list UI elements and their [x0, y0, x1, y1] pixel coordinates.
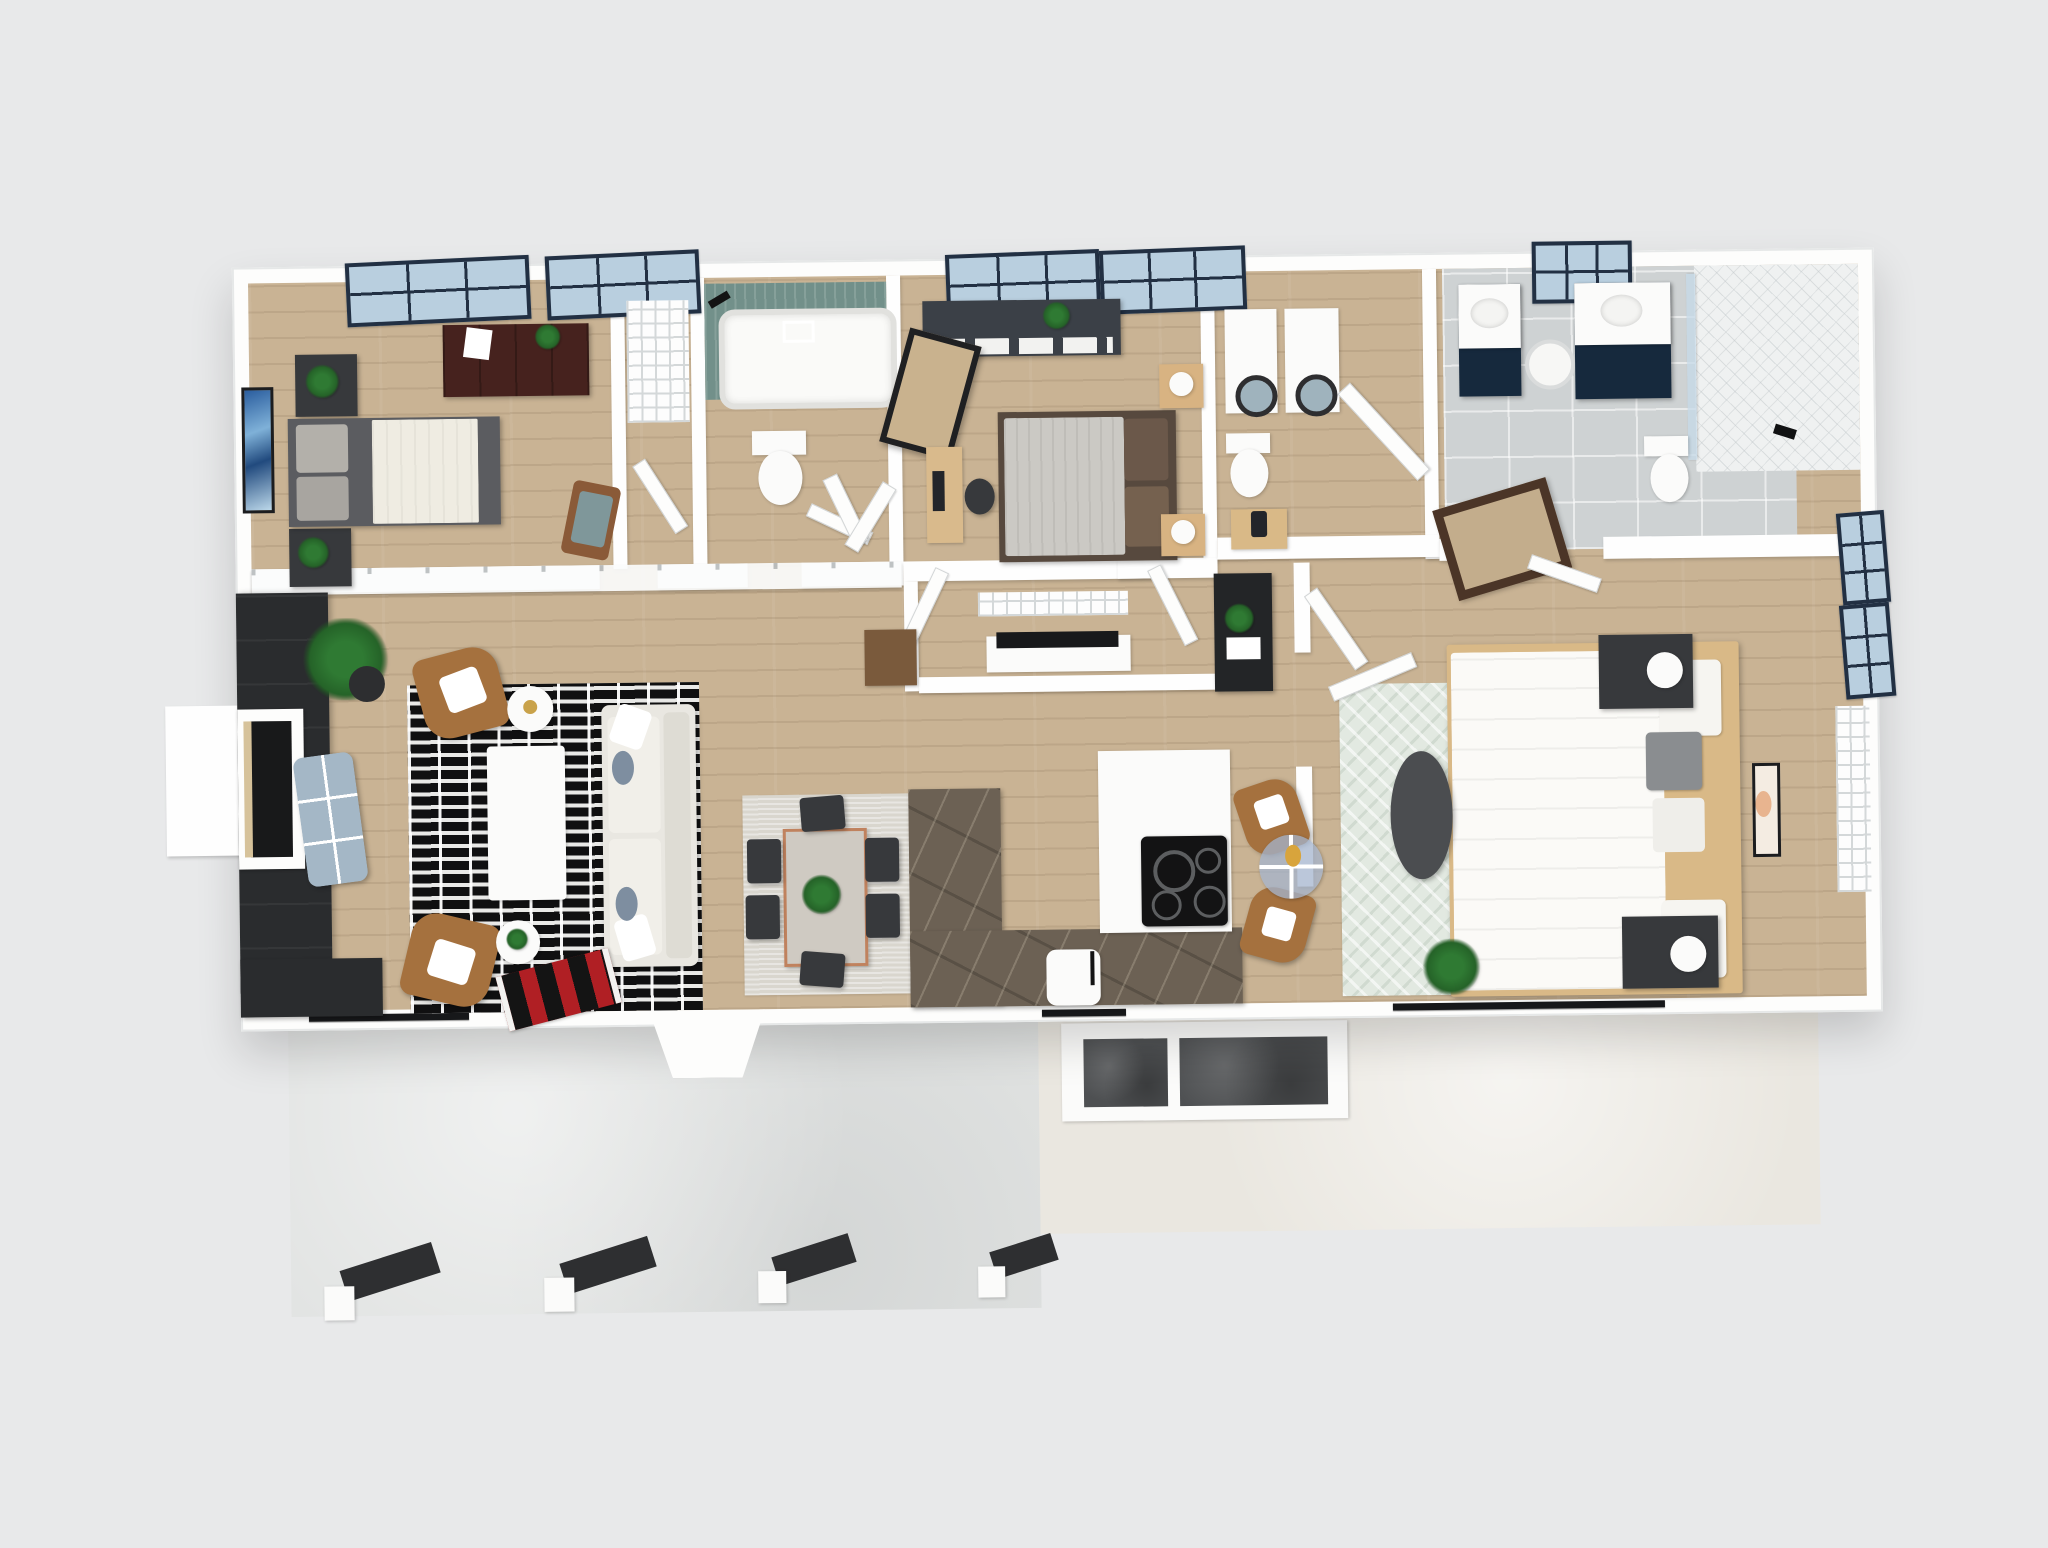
dining-chair — [799, 951, 845, 988]
bed1-pillow — [296, 424, 349, 473]
console-decor — [1226, 637, 1260, 659]
table-lamp-icon — [1251, 511, 1267, 537]
dining-chair — [746, 895, 781, 939]
bedroom2-window2-icon — [1099, 245, 1247, 315]
sliding-door-track-dining — [1042, 1009, 1126, 1017]
bed1-pillow — [296, 476, 349, 521]
plant-pot-icon — [349, 666, 385, 702]
throw-pillow-blue — [612, 751, 634, 785]
plant-icon — [1422, 938, 1481, 995]
plant-icon — [506, 928, 528, 950]
decor-gold-icon — [523, 700, 537, 714]
nook-wire-shelf — [978, 591, 1128, 617]
tub-drain — [783, 321, 815, 343]
toilet-bowl — [1650, 454, 1689, 502]
bin-handle-icon — [1090, 951, 1094, 985]
bed1-duvet — [372, 419, 479, 524]
post-base — [544, 1278, 574, 1312]
plant-icon — [535, 324, 561, 350]
porch-post-2 — [544, 1244, 675, 1346]
wall-pbath-south-right — [1603, 534, 1861, 559]
wall-bed2-south-right — [1117, 558, 1217, 579]
coffee-table — [487, 746, 567, 901]
burner-icon — [1195, 848, 1221, 874]
post-base — [978, 1266, 1005, 1297]
closet-wire-shelf — [626, 300, 689, 423]
wood-cabinet — [864, 629, 917, 686]
porch-post-1 — [324, 1251, 455, 1353]
throw-pillow-blue — [615, 887, 637, 921]
wall-primary-west-upper — [1294, 562, 1311, 652]
primary-pillow-small — [1652, 798, 1705, 853]
media-console — [240, 958, 383, 1018]
desk-chair — [964, 478, 994, 514]
deck-mat-small — [1083, 1038, 1168, 1107]
primary-side-window-icon — [1836, 510, 1891, 606]
dining-chair — [865, 838, 900, 882]
lamp-icon — [1171, 520, 1195, 544]
bedroom1-window-icon — [345, 255, 532, 328]
dining-chair — [866, 894, 901, 938]
lamp-icon — [1169, 372, 1193, 396]
burner-icon — [1193, 886, 1225, 918]
post-base — [324, 1286, 354, 1320]
bed2-brown-pillow — [1124, 418, 1169, 481]
primary-side-window2-icon — [1839, 602, 1897, 700]
deck-mat-large — [1179, 1036, 1328, 1106]
builtin-shelving — [1835, 706, 1871, 892]
tv-icon — [996, 631, 1118, 648]
round-lamp-icon — [1647, 652, 1683, 688]
art-circle — [1755, 791, 1771, 817]
porch-post-3 — [758, 1240, 879, 1341]
fireplace-box — [249, 721, 293, 858]
bed2-blanket — [1004, 417, 1126, 556]
walk-in-shower-floor — [1694, 264, 1861, 472]
toilet-bowl — [1230, 449, 1269, 497]
toilet-bowl — [758, 451, 803, 506]
decor-fruit-icon — [1285, 845, 1301, 867]
dresser-decor-book — [463, 327, 493, 360]
dining-chair — [799, 795, 846, 832]
dining-chair — [747, 839, 782, 883]
post-base — [758, 1271, 786, 1303]
round-lamp-icon — [1670, 936, 1706, 972]
sofa-back-cushions — [663, 712, 692, 958]
plan-rotation-wrapper — [0, 0, 2048, 1548]
primary-accent-pillow — [1646, 732, 1703, 791]
dresser-maroon — [443, 323, 590, 397]
fireplace-trim — [243, 721, 253, 857]
chimney-bump — [165, 706, 243, 857]
wall-art-blue — [241, 387, 275, 513]
floor-plan-rendering — [0, 0, 2048, 1536]
porch-post-4 — [978, 1235, 1089, 1336]
desk-monitor-icon — [932, 471, 944, 511]
